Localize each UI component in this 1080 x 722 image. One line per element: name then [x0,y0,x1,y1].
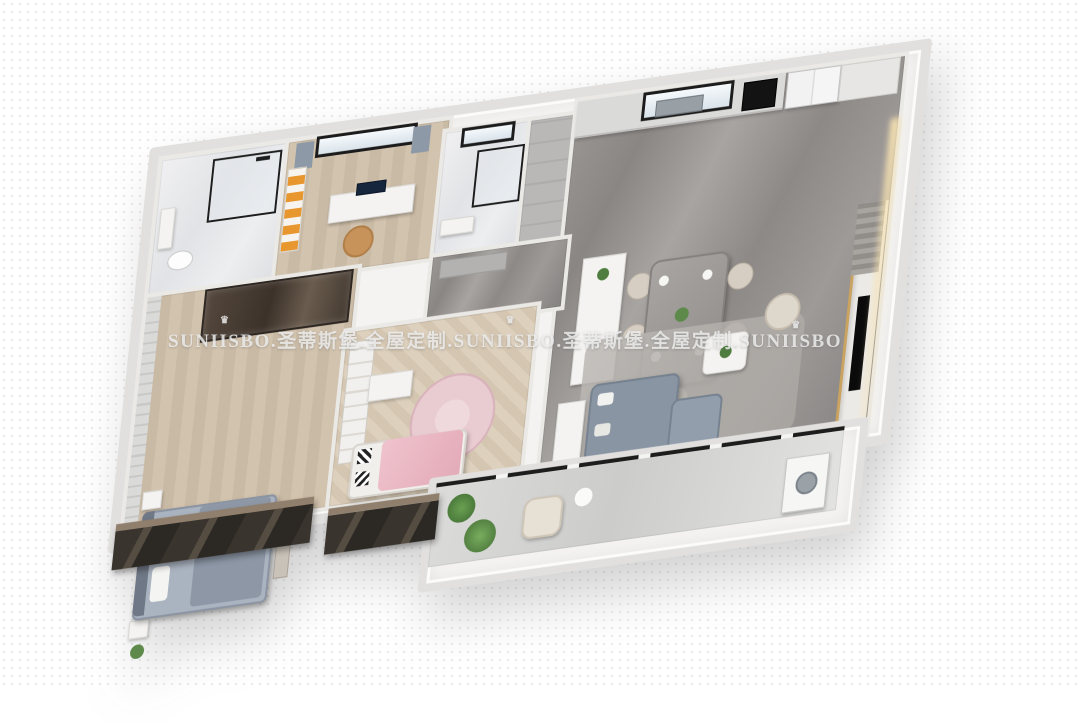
kids-desk [367,369,413,402]
bathroom-window [460,121,516,148]
apartment-3d-plan [90,41,913,722]
balcony-plant [446,492,477,525]
crown-icon: ♛ [791,321,801,331]
shower-enclosure [207,150,283,223]
crown-icon: ♛ [506,316,516,326]
shoe-cabinet [439,251,508,279]
crown-icon: ♛ [220,316,230,326]
bw-pillow [354,471,369,487]
balcony-plant [462,517,497,554]
watermark-brand: SUNIISBO [739,331,842,352]
dining-chair [726,261,755,291]
room-study [270,115,454,284]
study-window [315,122,418,158]
pantry-cabinet [838,57,901,102]
shower-corner [472,144,526,208]
bw-pillow [357,448,372,464]
lounge-chair [520,494,564,541]
bathroom-vanity [439,215,474,236]
watermark-segment: ♛SUNIISBO.圣蒂斯堡.全屋定制. [454,326,740,353]
bathroom-vanity [157,207,176,250]
watermark-brand: SUNIISBO [454,331,557,352]
nightstand [128,619,150,640]
oven [741,78,778,111]
watermark: ♛SUNIISBO.圣蒂斯堡.全屋定制.♛SUNIISBO.圣蒂斯堡.全屋定制.… [168,326,842,353]
watermark-brand: SUNIISBO [168,331,271,352]
watermark-segment: ♛SUNIISBO.圣蒂斯堡.全屋定制. [168,326,454,353]
toilet [166,249,194,272]
desk-armchair [341,223,375,259]
watermark-suffix: .圣蒂斯堡.全屋定制. [271,331,454,352]
refrigerator [784,65,841,109]
bookshelf-orange [279,166,307,253]
curtain [411,125,432,154]
nightstand [141,490,163,511]
watermark-suffix: .圣蒂斯堡.全屋定制. [556,331,739,352]
bedroom-plant [129,644,144,660]
side-table [573,485,595,508]
watermark-segment: ♛SUNIISBO [739,331,842,353]
